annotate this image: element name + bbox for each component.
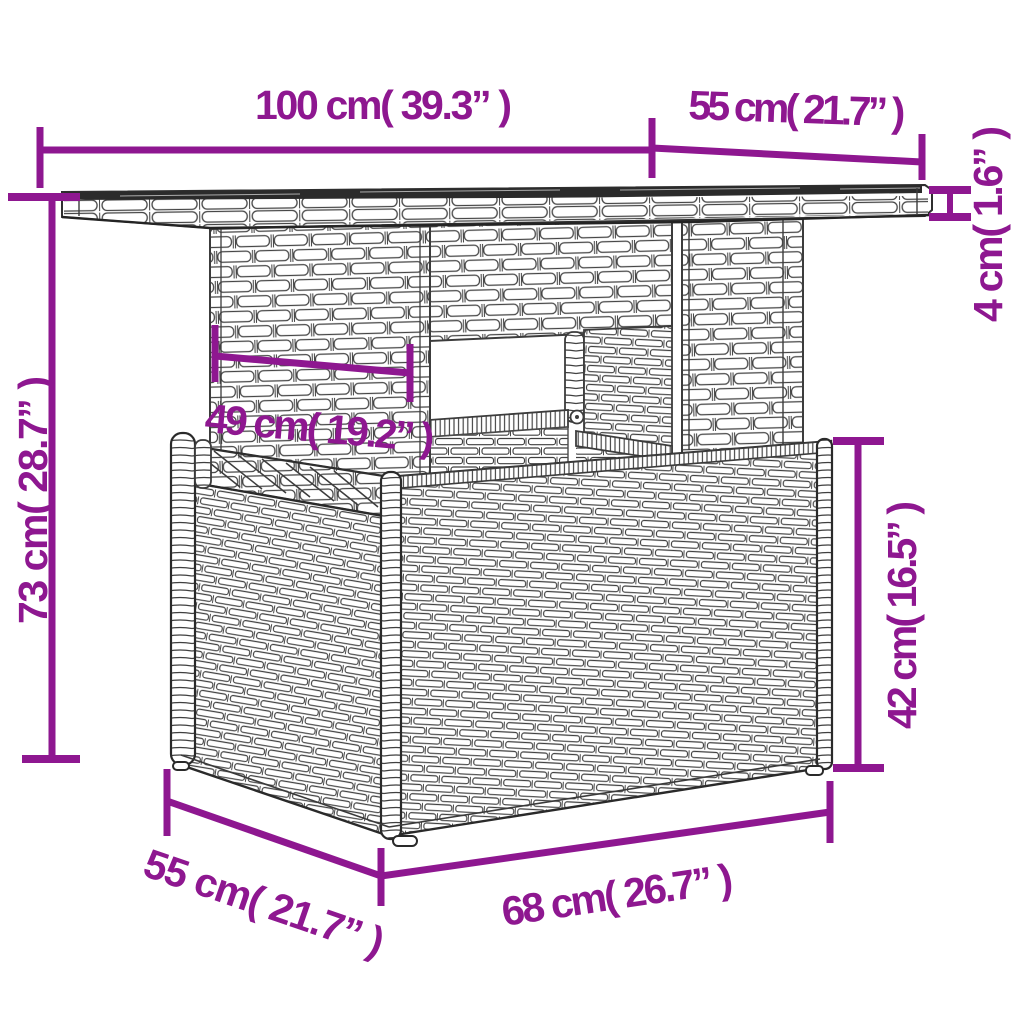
svg-text:73 cm( 28.7” ): 73 cm( 28.7” ) — [10, 376, 56, 624]
svg-text:42 cm( 16.5” ): 42 cm( 16.5” ) — [879, 501, 925, 729]
svg-text:55 cm( 21.7” ): 55 cm( 21.7” ) — [688, 82, 906, 136]
svg-text:100 cm( 39.3” ): 100 cm( 39.3” ) — [255, 82, 512, 128]
svg-text:4 cm( 1.6” ): 4 cm( 1.6” ) — [965, 126, 1011, 322]
